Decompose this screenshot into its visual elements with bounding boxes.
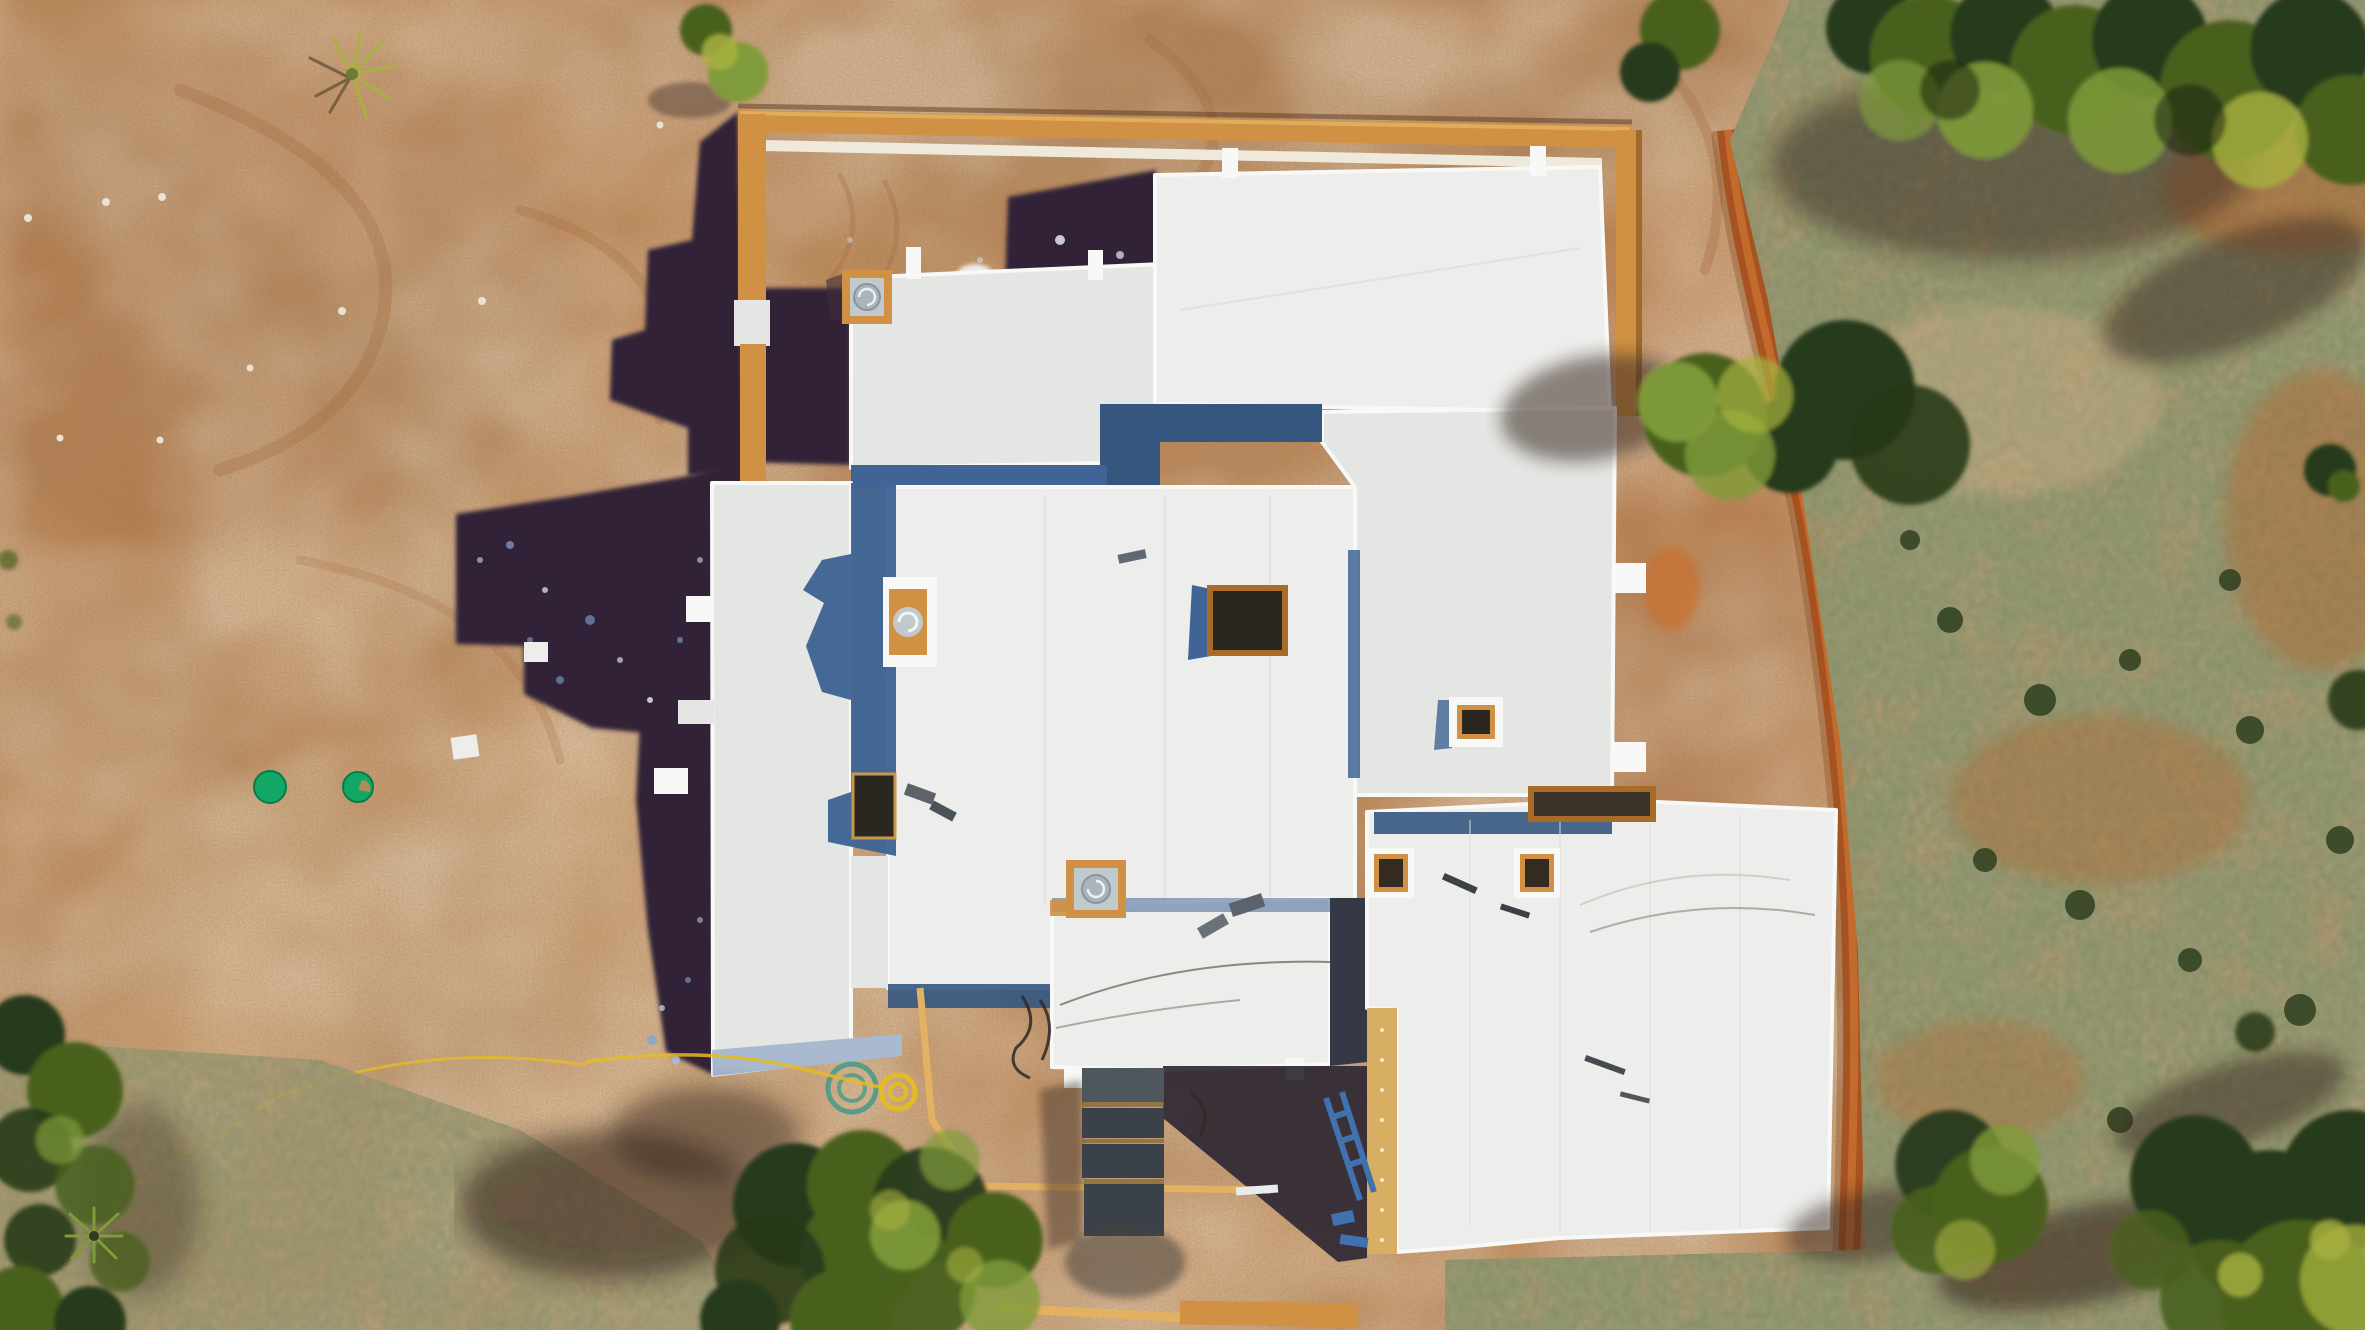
parapet-cap-east1 xyxy=(1612,563,1646,593)
aerial-photo xyxy=(0,0,2365,1330)
spoil-pile xyxy=(1644,546,1700,630)
parapet-cap-east2 xyxy=(1612,742,1646,772)
west-wall-plate-upper xyxy=(738,114,766,304)
skylight-opening-central xyxy=(1213,591,1282,650)
septic-lid-left xyxy=(254,771,286,803)
parapet-stub xyxy=(906,247,921,279)
roof-gap-dark xyxy=(1330,898,1367,1066)
parapet-stub xyxy=(1222,148,1238,178)
stake-tab-west1 xyxy=(451,734,480,759)
roof-bottom-center xyxy=(1052,898,1330,1070)
clerestory-opening xyxy=(1534,792,1650,816)
roof-vent-west xyxy=(883,577,937,667)
skylight-s5 xyxy=(1514,848,1560,898)
parapet-cap-west2 xyxy=(654,768,688,794)
osb-parapet-face xyxy=(1367,1008,1397,1254)
roof-left-wing-fill xyxy=(851,856,888,988)
parapet-stub xyxy=(1530,146,1546,176)
parapet-stub xyxy=(1088,250,1103,280)
parapet-cap-west1 xyxy=(686,596,714,622)
opening-left xyxy=(853,774,895,838)
west-wall-white-cap xyxy=(734,300,770,346)
lumber-plank xyxy=(1180,1300,1358,1327)
skylight-s4 xyxy=(1368,848,1414,898)
roof-joint-shadow xyxy=(1348,550,1360,778)
parapet-step xyxy=(678,700,714,724)
skylight-opening xyxy=(1462,710,1490,734)
stake-tab-west2 xyxy=(524,642,548,662)
yucca-bottom-left xyxy=(66,1208,122,1262)
aerial-photo-stage xyxy=(0,0,2365,1330)
roof-vent-south xyxy=(1066,860,1126,918)
roof-vent-north xyxy=(826,270,892,324)
roof-bottom-right xyxy=(1367,800,1836,1252)
